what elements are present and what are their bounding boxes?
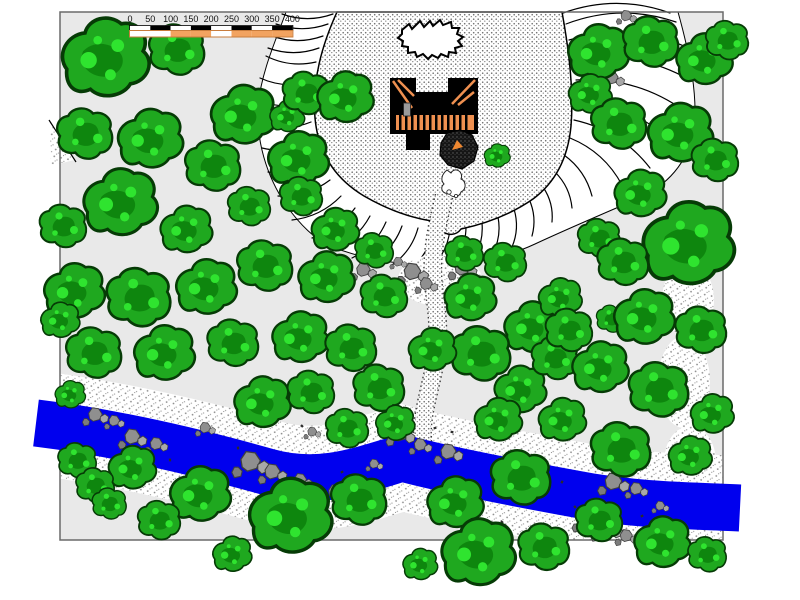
tree-highlight bbox=[339, 352, 345, 358]
tree-highlight bbox=[346, 505, 353, 512]
tree-highlight bbox=[376, 282, 383, 289]
tree-highlight bbox=[455, 294, 465, 304]
scale-tick-label: 50 bbox=[145, 14, 155, 24]
tree-highlight bbox=[165, 520, 172, 527]
tree-highlight bbox=[566, 410, 573, 417]
tree-highlight bbox=[371, 373, 379, 381]
tree-highlight bbox=[206, 295, 214, 303]
tree-highlight bbox=[66, 387, 69, 390]
tree-highlight bbox=[68, 464, 73, 469]
scale-segment bbox=[232, 26, 252, 30]
scale-tick-label: 200 bbox=[204, 14, 219, 24]
tree-highlight bbox=[690, 462, 695, 467]
tree-icon bbox=[623, 16, 678, 66]
scale-bar: 050100150200250300350400 bbox=[127, 14, 299, 37]
tree-highlight bbox=[225, 328, 233, 336]
bank-fleck bbox=[169, 459, 171, 462]
tree-highlight bbox=[563, 289, 569, 295]
tree-highlight bbox=[685, 119, 695, 129]
tree-highlight bbox=[532, 551, 538, 557]
tree-highlight bbox=[483, 537, 494, 548]
tree-highlight bbox=[498, 426, 504, 432]
tree-highlight bbox=[368, 239, 374, 245]
tree-icon bbox=[597, 239, 648, 285]
tree-highlight bbox=[350, 484, 359, 493]
tree-icon bbox=[331, 474, 386, 524]
tree-highlight bbox=[128, 279, 138, 289]
tree-highlight bbox=[246, 399, 257, 410]
tree-icon bbox=[518, 524, 569, 570]
tree-highlight bbox=[584, 83, 588, 87]
tree-highlight bbox=[662, 129, 674, 141]
tree-highlight bbox=[562, 358, 570, 366]
tree-highlight bbox=[252, 271, 259, 278]
tree-highlight bbox=[419, 347, 428, 356]
tree-highlight bbox=[420, 569, 424, 573]
tree-highlight bbox=[717, 44, 722, 49]
tree-highlight bbox=[255, 206, 262, 213]
tree-icon bbox=[40, 205, 87, 248]
scale-segment bbox=[252, 31, 272, 37]
tree-highlight bbox=[492, 408, 497, 413]
scale-segment bbox=[191, 26, 211, 30]
scale-segment bbox=[171, 31, 191, 37]
tree-highlight bbox=[706, 403, 710, 407]
tree-highlight bbox=[701, 543, 707, 549]
tree-highlight bbox=[190, 218, 198, 226]
tree-highlight bbox=[625, 190, 635, 200]
tree-highlight bbox=[395, 428, 400, 433]
tree-highlight bbox=[554, 287, 558, 291]
tree-highlight bbox=[200, 502, 208, 510]
tree-highlight bbox=[292, 323, 298, 329]
tree-highlight bbox=[148, 297, 159, 308]
tree-highlight bbox=[49, 318, 56, 325]
tree-highlight bbox=[600, 375, 607, 382]
tree-highlight bbox=[644, 182, 652, 190]
tree-icon bbox=[591, 98, 646, 148]
tree-highlight bbox=[502, 410, 509, 417]
tree-icon bbox=[576, 499, 623, 542]
tree-highlight bbox=[498, 250, 505, 257]
scale-segment bbox=[150, 26, 170, 30]
tree-highlight bbox=[715, 405, 721, 411]
tree-highlight bbox=[326, 285, 333, 292]
tree-highlight bbox=[55, 212, 62, 219]
tree-highlight bbox=[141, 122, 148, 129]
tree-highlight bbox=[149, 524, 154, 529]
tree-highlight bbox=[150, 147, 158, 155]
tree-highlight bbox=[147, 349, 158, 360]
tree-highlight bbox=[152, 508, 159, 515]
tree-highlight bbox=[256, 250, 265, 259]
tree-highlight bbox=[712, 420, 717, 425]
tree-highlight bbox=[423, 557, 428, 562]
tree-highlight bbox=[633, 180, 638, 185]
tree-highlight bbox=[367, 500, 376, 509]
tree-highlight bbox=[367, 392, 373, 398]
tree-highlight bbox=[156, 338, 162, 344]
tree-highlight bbox=[329, 94, 340, 105]
tree-highlight bbox=[606, 520, 614, 528]
tree-highlight bbox=[636, 302, 642, 308]
tree-highlight bbox=[86, 489, 91, 494]
tree-highlight bbox=[631, 262, 640, 271]
tree-highlight bbox=[439, 499, 450, 510]
bank-fleck bbox=[237, 446, 239, 449]
castle-door bbox=[404, 103, 411, 116]
tree-icon bbox=[288, 371, 335, 414]
tree-highlight bbox=[648, 304, 657, 313]
tree-icon bbox=[692, 139, 739, 182]
tree-highlight bbox=[60, 325, 65, 330]
tree-highlight bbox=[606, 129, 613, 136]
tree-highlight bbox=[511, 460, 520, 469]
scale-segment bbox=[191, 31, 211, 37]
tree-icon bbox=[237, 240, 292, 290]
tree-highlight bbox=[101, 507, 105, 511]
tree-highlight bbox=[646, 539, 657, 550]
tree-highlight bbox=[300, 345, 307, 352]
tree-highlight bbox=[581, 48, 592, 59]
tree-highlight bbox=[290, 527, 300, 537]
tree-icon bbox=[688, 537, 726, 572]
tree-icon bbox=[355, 233, 393, 268]
tree-highlight bbox=[455, 257, 460, 262]
tree-highlight bbox=[210, 274, 219, 283]
tree-highlight bbox=[644, 325, 652, 333]
tree-highlight bbox=[607, 455, 614, 462]
tree-highlight bbox=[186, 236, 193, 243]
tree-icon bbox=[325, 325, 376, 371]
tree-highlight bbox=[556, 408, 561, 413]
tree-highlight bbox=[436, 340, 443, 347]
tree-highlight bbox=[74, 299, 82, 307]
scale-tick-label: 150 bbox=[183, 14, 198, 24]
scale-segment bbox=[171, 26, 191, 30]
tree-highlight bbox=[590, 37, 596, 43]
tree-highlight bbox=[611, 266, 617, 272]
tree-highlight bbox=[698, 558, 703, 563]
tree-highlight bbox=[110, 184, 117, 191]
tree-highlight bbox=[189, 283, 200, 294]
tree-highlight bbox=[695, 224, 708, 237]
tree-highlight bbox=[713, 554, 720, 561]
tree-highlight bbox=[666, 530, 674, 538]
tree-highlight bbox=[610, 108, 619, 117]
tree-highlight bbox=[591, 506, 598, 513]
tree-highlight bbox=[485, 417, 494, 426]
scale-segment bbox=[272, 26, 292, 30]
tree-highlight bbox=[318, 392, 326, 400]
tree-highlight bbox=[640, 200, 647, 207]
tree-highlight bbox=[89, 474, 95, 480]
tree-icon bbox=[213, 536, 252, 571]
tree-highlight bbox=[604, 321, 608, 325]
tree-highlight bbox=[607, 310, 612, 315]
tree-highlight bbox=[302, 146, 311, 155]
tree-highlight bbox=[532, 335, 539, 342]
tree-highlight bbox=[678, 453, 686, 461]
tree-highlight bbox=[225, 111, 237, 123]
tree-highlight bbox=[494, 149, 497, 152]
tree-highlight bbox=[684, 445, 688, 449]
tree-highlight bbox=[590, 100, 595, 105]
tree-highlight bbox=[458, 242, 464, 248]
tree-icon bbox=[591, 422, 650, 476]
tree-highlight bbox=[83, 460, 90, 467]
tree-highlight bbox=[680, 141, 688, 149]
tree-highlight bbox=[654, 528, 660, 534]
tree-highlight bbox=[78, 278, 87, 287]
tree-highlight bbox=[234, 98, 241, 105]
tree-icon bbox=[138, 501, 180, 540]
tree-highlight bbox=[322, 227, 331, 236]
tree-highlight bbox=[649, 372, 658, 381]
tree-highlight bbox=[126, 456, 131, 461]
tree-highlight bbox=[390, 413, 394, 417]
tree-highlight bbox=[707, 146, 714, 153]
tree-highlight bbox=[329, 218, 334, 223]
tree-highlight bbox=[235, 546, 241, 552]
tree-highlight bbox=[204, 150, 213, 159]
tree-highlight bbox=[615, 247, 623, 255]
tree-highlight bbox=[337, 83, 343, 89]
tree-highlight bbox=[604, 355, 612, 363]
tree-highlight bbox=[478, 562, 487, 571]
tree-highlight bbox=[164, 55, 171, 62]
tree-highlight bbox=[415, 556, 418, 559]
tree-highlight bbox=[733, 40, 740, 47]
tree-highlight bbox=[391, 296, 399, 304]
tree-icon bbox=[361, 275, 408, 318]
tree-highlight bbox=[318, 263, 324, 269]
tree-highlight bbox=[330, 265, 338, 273]
tree-highlight bbox=[335, 236, 341, 242]
tree-highlight bbox=[124, 303, 132, 311]
tree-icon bbox=[546, 309, 593, 352]
tree-highlight bbox=[588, 524, 594, 530]
tree-highlight bbox=[536, 532, 544, 540]
tree-highlight bbox=[576, 330, 584, 338]
tree-icon bbox=[207, 320, 258, 366]
tree-highlight bbox=[81, 358, 88, 365]
tree-highlight bbox=[273, 266, 282, 275]
tree-highlight bbox=[282, 108, 285, 111]
tree-highlight bbox=[171, 226, 181, 236]
tree-highlight bbox=[337, 432, 342, 437]
tree-highlight bbox=[345, 105, 352, 112]
tree-highlight bbox=[155, 125, 165, 135]
tree-highlight bbox=[589, 242, 594, 247]
tree-highlight bbox=[552, 547, 561, 556]
tree-highlight bbox=[119, 465, 128, 474]
tree-highlight bbox=[66, 276, 72, 282]
tree-icon bbox=[484, 243, 526, 282]
tree-highlight bbox=[499, 150, 503, 154]
tree-highlight bbox=[76, 118, 85, 127]
tree-highlight bbox=[125, 187, 136, 198]
tree-highlight bbox=[689, 334, 695, 340]
tree-highlight bbox=[704, 164, 710, 170]
tree-highlight bbox=[232, 559, 237, 564]
tree-highlight bbox=[183, 490, 194, 501]
tree-icon bbox=[353, 365, 404, 411]
tree-highlight bbox=[627, 124, 636, 133]
tree-highlight bbox=[671, 116, 678, 123]
tree-highlight bbox=[561, 316, 568, 323]
tree-highlight bbox=[593, 85, 599, 91]
tree-highlight bbox=[490, 353, 500, 363]
tree-highlight bbox=[221, 347, 227, 353]
tree-highlight bbox=[524, 378, 532, 386]
tree-highlight bbox=[497, 159, 500, 162]
scale-tick-label: 0 bbox=[127, 14, 132, 24]
tree-highlight bbox=[722, 160, 730, 168]
tree-icon bbox=[280, 177, 322, 216]
tree-highlight bbox=[340, 416, 347, 423]
tree-highlight bbox=[93, 134, 102, 143]
tree-highlight bbox=[638, 47, 645, 54]
tree-highlight bbox=[520, 396, 527, 403]
tree-highlight bbox=[426, 338, 431, 343]
scale-tick-label: 350 bbox=[265, 14, 280, 24]
tree-highlight bbox=[578, 91, 586, 99]
tree-highlight bbox=[72, 388, 76, 392]
scale-segment bbox=[150, 31, 170, 37]
tree-highlight bbox=[200, 171, 207, 178]
tree-icon bbox=[491, 450, 550, 504]
tree-highlight bbox=[114, 504, 120, 510]
tree-highlight bbox=[380, 250, 387, 257]
tree-highlight bbox=[343, 333, 351, 341]
tree-highlight bbox=[511, 262, 518, 269]
tree-highlight bbox=[296, 498, 308, 510]
tree-highlight bbox=[70, 226, 78, 234]
tree-icon bbox=[706, 21, 748, 60]
scale-segment bbox=[211, 26, 231, 30]
tree-highlight bbox=[536, 315, 544, 323]
tree-highlight bbox=[516, 324, 527, 335]
tree-highlight bbox=[470, 304, 477, 311]
tree-highlight bbox=[304, 325, 312, 333]
tree-highlight bbox=[71, 449, 77, 455]
tree-highlight bbox=[307, 196, 314, 203]
tree-highlight bbox=[52, 230, 58, 236]
tree-highlight bbox=[349, 85, 357, 93]
tree-highlight bbox=[457, 548, 471, 562]
tree-highlight bbox=[248, 101, 258, 111]
tree-highlight bbox=[72, 139, 79, 146]
tree-highlight bbox=[693, 447, 699, 453]
tree-icon bbox=[629, 362, 688, 416]
tree-highlight bbox=[242, 194, 249, 201]
tree-highlight bbox=[447, 488, 453, 494]
scale-tick-label: 250 bbox=[224, 14, 239, 24]
tree-highlight bbox=[696, 45, 702, 51]
tree-highlight bbox=[365, 254, 370, 259]
tree-highlight bbox=[353, 428, 360, 435]
tree-highlight bbox=[720, 28, 727, 35]
tree-highlight bbox=[61, 393, 67, 399]
tree-icon bbox=[403, 548, 438, 579]
tree-highlight bbox=[221, 166, 230, 175]
tree-highlight bbox=[227, 544, 231, 548]
tree-highlight bbox=[179, 216, 184, 221]
tree-highlight bbox=[676, 221, 685, 230]
tree-highlight bbox=[132, 135, 144, 147]
tree-icon bbox=[92, 488, 126, 519]
tree-highlight bbox=[467, 359, 474, 366]
scale-segment bbox=[211, 31, 231, 37]
tree-highlight bbox=[262, 410, 269, 417]
tree-highlight bbox=[544, 362, 550, 368]
scale-segment bbox=[130, 26, 150, 30]
tree-highlight bbox=[266, 390, 274, 398]
tree-highlight bbox=[562, 426, 568, 432]
tree-highlight bbox=[120, 212, 129, 221]
map-page: 050100150200250300350400 bbox=[0, 0, 800, 600]
tree-highlight bbox=[168, 340, 177, 349]
tree-highlight bbox=[704, 67, 711, 74]
tree-highlight bbox=[267, 511, 283, 527]
tree-highlight bbox=[688, 56, 699, 67]
tree-highlight bbox=[662, 550, 669, 557]
tree-highlight bbox=[287, 121, 291, 125]
tree-highlight bbox=[507, 483, 514, 490]
tree-highlight bbox=[111, 39, 124, 52]
tree-highlight bbox=[387, 388, 396, 397]
tree-highlight bbox=[298, 79, 305, 86]
tree-highlight bbox=[668, 389, 678, 399]
tree-icon bbox=[326, 409, 368, 448]
wilderness-map-canvas: 050100150200250300350400 bbox=[0, 0, 800, 600]
tree-highlight bbox=[584, 364, 595, 375]
tree-highlight bbox=[204, 481, 213, 490]
scale-segment bbox=[130, 31, 150, 37]
tree-highlight bbox=[63, 312, 69, 318]
tree-highlight bbox=[105, 69, 116, 80]
tree-highlight bbox=[303, 378, 310, 385]
scale-segment bbox=[232, 31, 252, 37]
tree-highlight bbox=[80, 52, 96, 68]
tree-highlight bbox=[290, 144, 296, 150]
tree-icon bbox=[228, 187, 270, 226]
tree-highlight bbox=[102, 353, 111, 362]
tree-highlight bbox=[164, 361, 172, 369]
tree-highlight bbox=[471, 336, 480, 345]
tree-icon bbox=[445, 236, 483, 271]
tree-highlight bbox=[243, 123, 251, 131]
tree-highlight bbox=[284, 334, 295, 345]
tree-highlight bbox=[57, 287, 68, 298]
tree-highlight bbox=[659, 42, 668, 51]
tree-highlight bbox=[662, 238, 679, 255]
tree-highlight bbox=[463, 284, 468, 289]
tree-highlight bbox=[192, 479, 198, 485]
tree-highlight bbox=[373, 300, 379, 306]
tree-highlight bbox=[85, 337, 94, 346]
tree-highlight bbox=[524, 313, 530, 319]
tree-highlight bbox=[132, 474, 138, 480]
tree-highlight bbox=[239, 210, 244, 215]
tree-icon bbox=[185, 140, 240, 190]
tree-highlight bbox=[221, 552, 228, 559]
tree-icon bbox=[57, 108, 112, 158]
tree-highlight bbox=[709, 330, 718, 339]
tree-highlight bbox=[93, 36, 102, 45]
tree-highlight bbox=[241, 343, 250, 352]
